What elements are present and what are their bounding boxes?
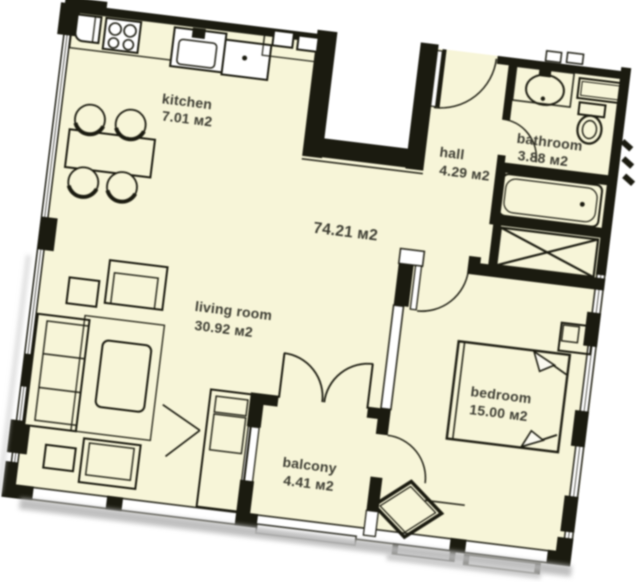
svg-text:hall: hall [439,144,466,163]
